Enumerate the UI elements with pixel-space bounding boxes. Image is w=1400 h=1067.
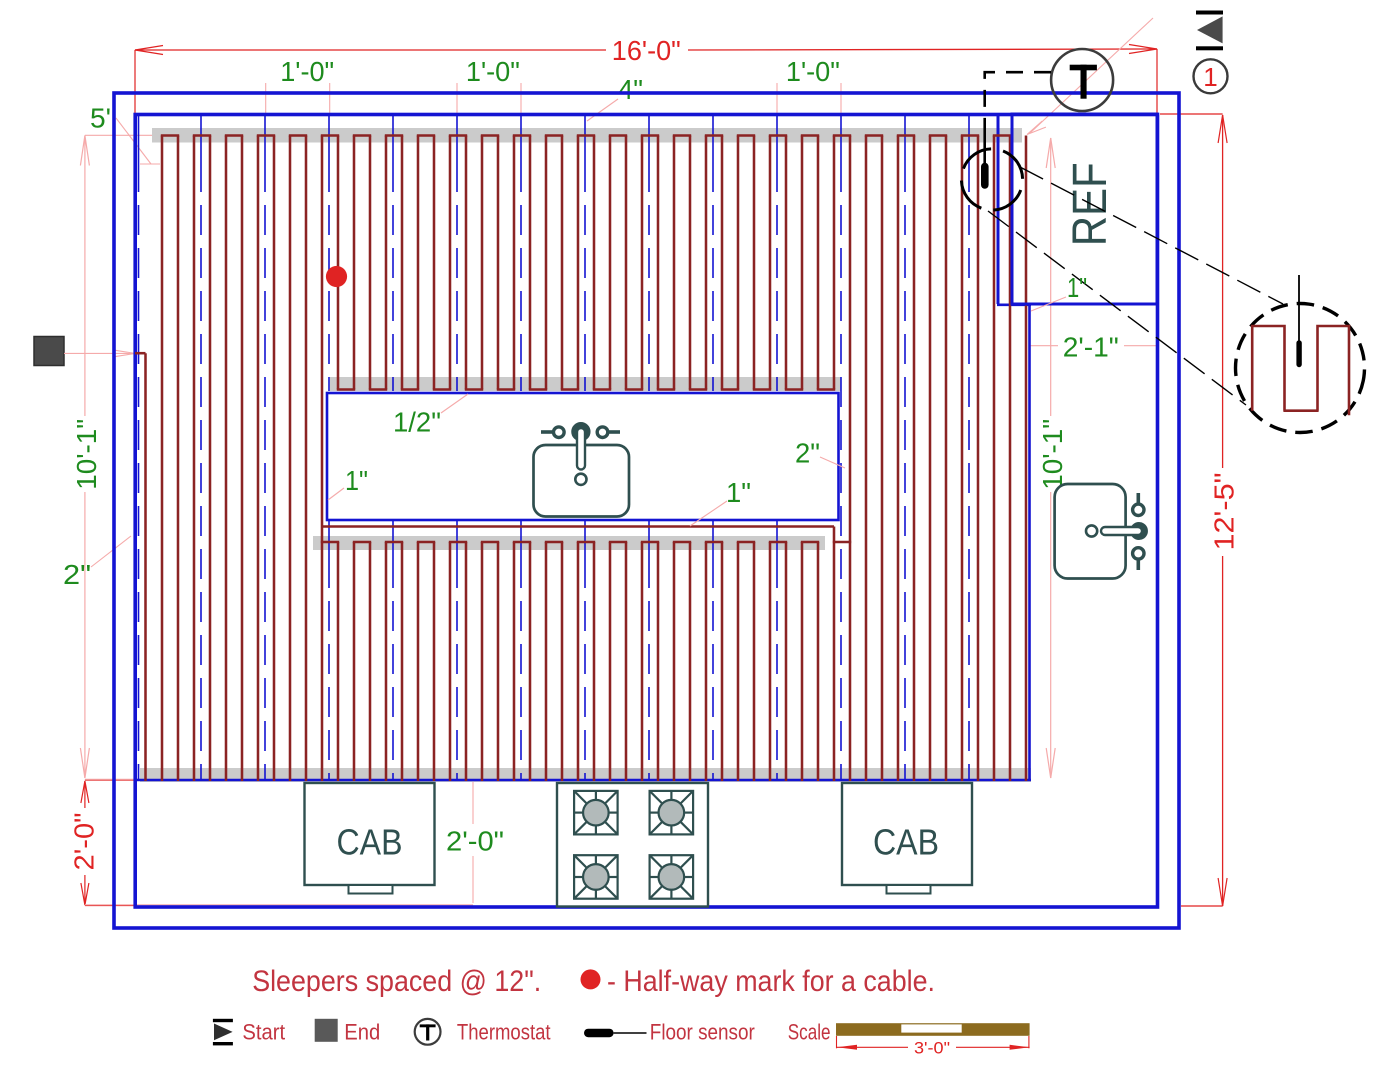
svg-text:Sleepers spaced @ 12".: Sleepers spaced @ 12". [252, 965, 541, 998]
svg-text:16'-0": 16'-0" [612, 35, 681, 66]
svg-text:1": 1" [345, 465, 368, 496]
svg-text:Floor sensor: Floor sensor [650, 1020, 755, 1045]
svg-text:- Half-way mark for a cable.: - Half-way mark for a cable. [607, 965, 935, 998]
svg-text:1": 1" [726, 477, 751, 508]
svg-text:CAB: CAB [873, 822, 939, 863]
svg-text:1'-0": 1'-0" [466, 56, 520, 87]
svg-text:Start: Start [242, 1020, 285, 1045]
svg-text:2": 2" [795, 438, 820, 469]
svg-text:4": 4" [618, 74, 643, 105]
svg-text:Thermostat: Thermostat [457, 1020, 551, 1045]
svg-text:10'-1": 10'-1" [1037, 419, 1068, 490]
svg-text:1'-0": 1'-0" [280, 56, 334, 87]
svg-text:2'-0": 2'-0" [446, 826, 504, 857]
svg-text:12'-5": 12'-5" [1209, 473, 1240, 551]
svg-text:10'-1": 10'-1" [71, 419, 102, 490]
svg-text:3'-0": 3'-0" [914, 1038, 950, 1057]
svg-text:1: 1 [1203, 62, 1217, 92]
svg-text:2'-0": 2'-0" [69, 813, 100, 871]
svg-text:1": 1" [1067, 272, 1087, 303]
svg-text:CAB: CAB [337, 822, 403, 863]
svg-text:End: End [344, 1020, 380, 1045]
svg-text:2": 2" [63, 559, 91, 590]
svg-text:5': 5' [90, 103, 111, 134]
svg-text:1/2": 1/2" [393, 407, 441, 438]
svg-text:2'-1": 2'-1" [1063, 332, 1119, 363]
svg-text:Scale: Scale [788, 1020, 831, 1045]
svg-text:1'-0": 1'-0" [786, 56, 840, 87]
